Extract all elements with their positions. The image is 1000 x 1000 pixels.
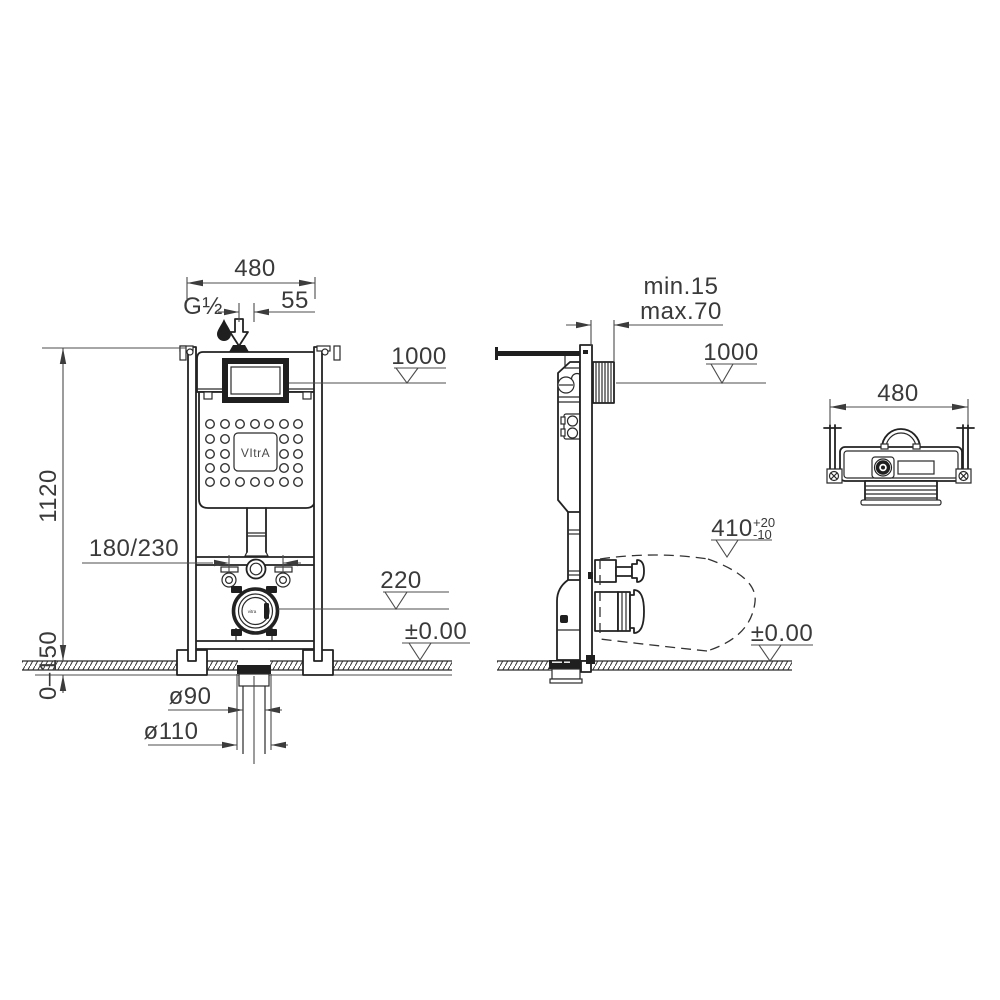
dim-drain-outer: ø110 [144, 718, 199, 745]
datum-triangle-1000-front [396, 368, 418, 383]
drain-brand-label: vitra [248, 609, 257, 614]
side-fitting [561, 414, 581, 439]
side-rail [495, 345, 595, 672]
dim-wall-min: min.15 [643, 273, 718, 300]
side-tab-right [303, 392, 311, 399]
datum-triangle-220 [385, 592, 407, 609]
technical-drawing-page: VItrA [0, 0, 1000, 1000]
top-dimensions: 480 [830, 380, 968, 424]
dim-pan-length: 410 [711, 515, 753, 542]
wall-bracket [497, 351, 580, 356]
dim-fixing-spacing: 180/230 [89, 535, 179, 562]
datum-triangle-floor-front [409, 643, 431, 660]
pipe-label-band [549, 660, 581, 669]
installation-frame-drawing: VItrA [0, 0, 1000, 1000]
datum-floor-side: ±0.00 [751, 620, 813, 647]
corner-bracket-left [827, 469, 842, 483]
plan-body [840, 444, 962, 481]
floor-line [22, 661, 792, 675]
datum-floor-front: ±0.00 [405, 618, 467, 645]
datum-triangle-1000-side [711, 364, 733, 383]
cistern-tank: VItrA [197, 345, 319, 508]
datum-outlet: 220 [380, 567, 422, 594]
side-view: min.15 max.70 1000 410 +20 -10 ±0.00 [495, 273, 813, 683]
dim-wall-max: max.70 [640, 298, 722, 325]
flush-connection [595, 560, 644, 582]
drain-pipe-floor [237, 650, 271, 764]
side-tab-left [204, 392, 212, 399]
inlet-valve-plan [872, 457, 894, 478]
access-window [222, 358, 289, 403]
flush-bend [245, 508, 268, 556]
corner-bracket-right [956, 469, 971, 483]
datum-triangle-floor-side [759, 645, 781, 661]
dim-width-top: 480 [877, 380, 919, 407]
brand-logo: VItrA [241, 446, 270, 460]
plan-window [898, 461, 934, 474]
dim-pan-tol-minus: -10 [753, 527, 772, 542]
side-drain-elbow [549, 580, 582, 683]
inlet-arrow-icon [230, 319, 248, 346]
flush-socket [247, 560, 266, 579]
drain-elbow-front: vitra [231, 586, 278, 636]
dim-water-inlet: G½ [183, 293, 223, 320]
datum-lid-front: 1000 [391, 343, 446, 370]
front-view: VItrA [35, 255, 470, 764]
top-view: 480 [824, 380, 974, 505]
dim-drain-inner: ø90 [169, 683, 212, 710]
dim-width-front: 480 [234, 255, 276, 282]
water-drop-icon [217, 319, 231, 341]
dim-frame-height: 1120 [35, 469, 62, 523]
datum-lid-side: 1000 [703, 339, 758, 366]
ribbed-sleeve-side [593, 362, 614, 403]
dim-floor-range: 0–150 [35, 631, 62, 700]
datum-triangle-410 [716, 540, 738, 557]
side-cistern [558, 362, 583, 580]
dim-inlet-offset: 55 [281, 287, 309, 314]
ribbed-sleeve-plan [861, 481, 941, 505]
waste-connection [595, 590, 644, 633]
